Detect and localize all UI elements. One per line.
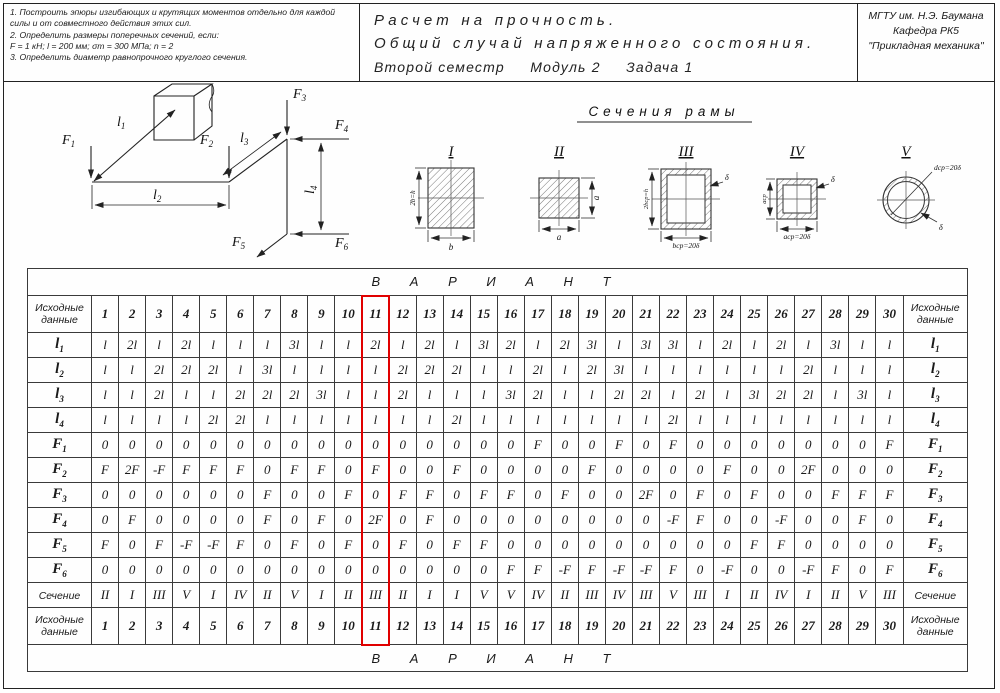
value-cell: 0 <box>308 433 335 458</box>
value-cell: 0 <box>389 558 416 583</box>
force-f5-arrow <box>257 234 287 257</box>
variant-number: 5 <box>200 608 227 645</box>
value-cell: 2l <box>659 408 686 433</box>
value-cell: 0 <box>443 558 470 583</box>
value-cell: 0 <box>687 433 714 458</box>
value-cell: 0 <box>200 483 227 508</box>
value-cell: l <box>659 383 686 408</box>
value-cell: F <box>768 533 795 558</box>
value-cell: l <box>822 358 849 383</box>
value-cell: F <box>335 483 362 508</box>
value-cell: l <box>308 408 335 433</box>
value-cell: l <box>335 358 362 383</box>
value-cell: F <box>876 558 903 583</box>
value-cell: 2l <box>714 333 741 358</box>
value-cell: 3l <box>497 383 524 408</box>
value-cell: -F <box>768 508 795 533</box>
value-cell: 0 <box>119 483 146 508</box>
value-cell: F <box>849 508 876 533</box>
variant-number: 4 <box>173 296 200 333</box>
value-cell: 2l <box>416 358 443 383</box>
value-cell: IV <box>227 583 254 608</box>
value-cell: II <box>335 583 362 608</box>
beam-l1 <box>94 110 175 181</box>
variant-number: 22 <box>659 296 686 333</box>
value-cell: l <box>92 358 119 383</box>
value-cell: II <box>741 583 768 608</box>
value-cell: 2l <box>200 408 227 433</box>
value-cell: F <box>92 458 119 483</box>
value-cell: l <box>119 358 146 383</box>
value-cell: II <box>551 583 578 608</box>
variant-number: 3 <box>146 608 173 645</box>
value-cell: F <box>119 508 146 533</box>
value-cell: F <box>443 533 470 558</box>
sections-title: Сечения рамы <box>588 104 739 119</box>
value-cell: 0 <box>822 458 849 483</box>
variant-number: 20 <box>605 608 632 645</box>
variant-number: 7 <box>254 296 281 333</box>
section-V-dim-thickness: δ <box>939 223 943 232</box>
value-cell: F <box>659 558 686 583</box>
value-cell: l <box>119 408 146 433</box>
value-cell: II <box>389 583 416 608</box>
value-cell: 0 <box>146 558 173 583</box>
row-label-cell: l2 <box>28 358 92 383</box>
value-cell: 0 <box>200 433 227 458</box>
value-cell: II <box>822 583 849 608</box>
value-cell: F <box>578 558 605 583</box>
value-cell: F <box>849 483 876 508</box>
value-cell: 0 <box>92 433 119 458</box>
l3-dimension <box>223 132 281 175</box>
variant-number: 29 <box>849 296 876 333</box>
value-cell: 0 <box>335 558 362 583</box>
value-cell: F <box>362 458 389 483</box>
value-cell: 0 <box>741 558 768 583</box>
value-cell: 0 <box>92 508 119 533</box>
row-label-text: F <box>52 486 62 502</box>
value-cell: 0 <box>416 533 443 558</box>
row-label-cell: l4 <box>903 408 967 433</box>
value-cell: IV <box>524 583 551 608</box>
value-cell: 0 <box>308 533 335 558</box>
value-cell: 0 <box>362 533 389 558</box>
row-label-cell: l3 <box>28 383 92 408</box>
corner-label: Исходные данные <box>28 296 92 333</box>
title-line-3: Второй семестр Модуль 2 Задача 1 <box>374 59 857 75</box>
value-cell: l <box>876 333 903 358</box>
section-IV-numeral: IV <box>789 144 806 160</box>
variant-number: 2 <box>119 608 146 645</box>
variant-number: 4 <box>173 608 200 645</box>
value-cell: 2l <box>578 358 605 383</box>
variant-number: 2 <box>119 296 146 333</box>
variant-number: 17 <box>524 296 551 333</box>
value-cell: F <box>741 533 768 558</box>
variant-number: 25 <box>741 296 768 333</box>
value-cell: l <box>876 358 903 383</box>
table-row: l1l2ll2llll3lll2ll2ll3l2ll2l3ll3l3ll2ll2… <box>28 333 968 358</box>
value-cell: 0 <box>497 433 524 458</box>
value-cell: -F <box>795 558 822 583</box>
section-I-dim-bottom: b <box>449 242 454 252</box>
variant-number: 8 <box>281 608 308 645</box>
value-cell: F <box>497 558 524 583</box>
value-cell: IV <box>605 583 632 608</box>
value-cell: 2l <box>389 383 416 408</box>
org-line-3: "Прикладная механика" <box>858 39 994 54</box>
value-cell: 0 <box>632 508 659 533</box>
value-cell: I <box>119 583 146 608</box>
row-label-cell: l3 <box>903 383 967 408</box>
variant-number: 19 <box>578 608 605 645</box>
row-label-cell: Сечение <box>28 583 92 608</box>
value-cell: l <box>200 333 227 358</box>
section-V-numeral: V <box>901 144 912 160</box>
value-cell: V <box>173 583 200 608</box>
value-cell: 0 <box>308 558 335 583</box>
value-cell: F <box>524 433 551 458</box>
value-cell: -F <box>551 558 578 583</box>
section-V-dim-diameter: dср=20δ <box>934 163 961 172</box>
row-label-cell: l1 <box>28 333 92 358</box>
value-cell: l <box>876 383 903 408</box>
value-cell: F <box>578 458 605 483</box>
value-cell: 0 <box>254 533 281 558</box>
value-cell: 0 <box>443 508 470 533</box>
variant-number: 26 <box>768 296 795 333</box>
corner-label: Исходные данные <box>903 296 967 333</box>
value-cell: 0 <box>578 508 605 533</box>
row-label-cell: F4 <box>28 508 92 533</box>
value-cell: V <box>849 583 876 608</box>
value-cell: l <box>200 383 227 408</box>
value-cell: 0 <box>497 458 524 483</box>
value-cell: 0 <box>92 483 119 508</box>
value-cell: 0 <box>741 458 768 483</box>
value-cell: l <box>876 408 903 433</box>
value-cell: 0 <box>714 508 741 533</box>
row-label-cell: l2 <box>903 358 967 383</box>
value-cell: 0 <box>659 458 686 483</box>
value-cell: l <box>551 383 578 408</box>
variant-number: 18 <box>551 608 578 645</box>
value-cell: 0 <box>605 458 632 483</box>
value-cell: 2l <box>497 333 524 358</box>
value-cell: l <box>335 408 362 433</box>
value-cell: l <box>416 383 443 408</box>
row-label-text: F <box>52 561 62 577</box>
section-IV: IV aср aср=20δ δ <box>761 144 835 241</box>
value-cell: F <box>443 458 470 483</box>
value-cell: 0 <box>632 458 659 483</box>
value-cell: 0 <box>795 508 822 533</box>
section-III-numeral: III <box>678 144 695 160</box>
value-cell: 0 <box>687 458 714 483</box>
corner-label: Исходные данные <box>903 608 967 645</box>
value-cell: V <box>281 583 308 608</box>
variant-number: 16 <box>497 296 524 333</box>
value-cell: 3l <box>632 333 659 358</box>
value-cell: l <box>822 383 849 408</box>
value-cell: l <box>470 383 497 408</box>
value-cell: V <box>470 583 497 608</box>
value-cell: l <box>335 383 362 408</box>
value-cell: 0 <box>822 533 849 558</box>
value-cell: 0 <box>714 433 741 458</box>
value-cell: l <box>768 358 795 383</box>
length-label-l4: l4 <box>303 185 319 194</box>
organization-block: МГТУ им. Н.Э. Баумана Кафедра РК5 "Прикл… <box>857 4 994 81</box>
value-cell: 0 <box>849 458 876 483</box>
value-cell: F <box>714 458 741 483</box>
variant-number: 3 <box>146 296 173 333</box>
value-cell: 0 <box>768 483 795 508</box>
value-cell: 0 <box>335 458 362 483</box>
corner-label: Исходные данные <box>28 608 92 645</box>
value-cell: 0 <box>714 483 741 508</box>
value-cell: l <box>173 383 200 408</box>
value-cell: 2l <box>281 383 308 408</box>
value-cell: -F <box>200 533 227 558</box>
value-cell: 2l <box>362 333 389 358</box>
org-line-2: Кафедра РК5 <box>858 24 994 39</box>
value-cell: 3l <box>281 333 308 358</box>
value-cell: l <box>849 408 876 433</box>
value-cell: l <box>173 408 200 433</box>
row-label-cell: F6 <box>28 558 92 583</box>
value-cell: 0 <box>227 433 254 458</box>
variant-banner: В А Р И А Н Т <box>28 645 968 672</box>
value-cell: 2l <box>146 358 173 383</box>
variant-number: 5 <box>200 296 227 333</box>
variant-number: 6 <box>227 296 254 333</box>
value-cell: 0 <box>416 558 443 583</box>
value-cell: l <box>443 333 470 358</box>
variant-number: 13 <box>416 296 443 333</box>
value-cell: 3l <box>741 383 768 408</box>
value-cell: F <box>389 483 416 508</box>
row-label-cell: F1 <box>28 433 92 458</box>
value-cell: F <box>470 483 497 508</box>
value-cell: 0 <box>876 533 903 558</box>
value-cell: l <box>768 408 795 433</box>
value-cell: 0 <box>92 558 119 583</box>
value-cell: F <box>146 533 173 558</box>
value-cell: 0 <box>227 483 254 508</box>
value-cell: III <box>632 583 659 608</box>
value-cell: 0 <box>119 433 146 458</box>
variant-number: 27 <box>795 296 822 333</box>
value-cell: l <box>524 408 551 433</box>
task-sheet: 1. Построить эпюры изгибающих и крутящих… <box>3 3 995 689</box>
value-cell: 0 <box>822 433 849 458</box>
row-label-text: F <box>928 486 938 502</box>
value-cell: l <box>362 358 389 383</box>
variant-number: 21 <box>632 608 659 645</box>
value-cell: 0 <box>362 433 389 458</box>
value-cell: l <box>741 408 768 433</box>
header-band: 1. Построить эпюры изгибающих и крутящих… <box>4 4 994 82</box>
value-cell: F <box>416 508 443 533</box>
task-item-2: 2. Определить размеры поперечных сечений… <box>10 30 353 41</box>
value-cell: 2l <box>443 408 470 433</box>
value-cell: 0 <box>254 433 281 458</box>
table-row: F10000000000000000F00F0F0000000FF1 <box>28 433 968 458</box>
value-cell: 2l <box>551 333 578 358</box>
value-cell: 0 <box>119 533 146 558</box>
force-label-f1: F1 <box>61 133 75 149</box>
section-II: II a a <box>530 144 601 242</box>
row-label-cell: F2 <box>28 458 92 483</box>
section-I-numeral: I <box>448 144 455 160</box>
value-cell: 0 <box>578 533 605 558</box>
value-cell: l <box>146 408 173 433</box>
value-cell: l <box>92 408 119 433</box>
value-cell: 2l <box>227 408 254 433</box>
variant-number: 14 <box>443 608 470 645</box>
value-cell: 0 <box>173 558 200 583</box>
value-cell: l <box>659 358 686 383</box>
variant-number: 25 <box>741 608 768 645</box>
value-cell: F <box>822 483 849 508</box>
value-cell: F <box>173 458 200 483</box>
variant-number: 12 <box>389 608 416 645</box>
value-cell: 0 <box>687 533 714 558</box>
value-cell: 0 <box>173 508 200 533</box>
value-cell: 0 <box>714 533 741 558</box>
table-row: l3ll2lll2l2l2l3lll2llll3l2lll2l2ll2ll3l2… <box>28 383 968 408</box>
value-cell: 0 <box>470 433 497 458</box>
variant-number: 15 <box>470 296 497 333</box>
value-cell: 2F <box>362 508 389 533</box>
value-cell: 0 <box>173 483 200 508</box>
value-cell: 0 <box>741 433 768 458</box>
value-cell: III <box>687 583 714 608</box>
title-line-2: Общий случай напряженного состояния. <box>374 33 857 56</box>
variant-number: 13 <box>416 608 443 645</box>
value-cell: F <box>92 533 119 558</box>
value-cell: 2l <box>768 333 795 358</box>
value-cell: 0 <box>200 558 227 583</box>
value-cell: l <box>119 383 146 408</box>
value-cell: 0 <box>578 483 605 508</box>
variant-number: 20 <box>605 296 632 333</box>
value-cell: 0 <box>470 458 497 483</box>
value-cell: F <box>876 433 903 458</box>
row-label-text: F <box>928 461 938 477</box>
row-label-cell: F2 <box>903 458 967 483</box>
table-row: F40F0000F0F02F0F00000000-FF00-F00F0F4 <box>28 508 968 533</box>
value-cell: F <box>227 533 254 558</box>
row-label-text: F <box>928 536 938 552</box>
value-cell: 0 <box>389 508 416 533</box>
value-cell: l <box>308 333 335 358</box>
row-label-text: F <box>52 511 62 527</box>
value-cell: l <box>470 408 497 433</box>
variant-number: 12 <box>389 296 416 333</box>
variant-number: 23 <box>687 296 714 333</box>
value-cell: II <box>92 583 119 608</box>
value-cell: l <box>443 383 470 408</box>
value-cell: 2F <box>795 458 822 483</box>
row-label-text: F <box>52 536 62 552</box>
value-cell: l <box>524 333 551 358</box>
variant-numbers-row: Исходные данные1234567891011121314151617… <box>28 608 968 645</box>
banner-row: В А Р И А Н Т <box>28 645 968 672</box>
value-cell: l <box>362 408 389 433</box>
value-cell: 0 <box>605 508 632 533</box>
value-cell: 3l <box>254 358 281 383</box>
value-cell: 0 <box>281 558 308 583</box>
value-cell: IV <box>768 583 795 608</box>
row-label-cell: Сечение <box>903 583 967 608</box>
drawings-svg: F1 F2 F3 F4 F5 F6 l1 l2 l3 l4 Сечения ра… <box>4 82 993 268</box>
value-cell: 0 <box>524 483 551 508</box>
value-cell: II <box>254 583 281 608</box>
value-cell: 0 <box>443 483 470 508</box>
value-cell: 3l <box>659 333 686 358</box>
row-label-cell: F5 <box>28 533 92 558</box>
value-cell: 2l <box>254 383 281 408</box>
value-cell: 0 <box>227 558 254 583</box>
variant-number: 30 <box>876 296 903 333</box>
value-cell: III <box>146 583 173 608</box>
force-label-f2: F2 <box>199 133 214 149</box>
variant-number: 28 <box>822 608 849 645</box>
value-cell: F <box>254 508 281 533</box>
variant-number: 11 <box>362 296 389 333</box>
variant-number: 19 <box>578 296 605 333</box>
value-cell: F <box>605 433 632 458</box>
variant-number: 26 <box>768 608 795 645</box>
variant-number: 18 <box>551 296 578 333</box>
value-cell: 3l <box>470 333 497 358</box>
value-cell: 2l <box>146 383 173 408</box>
value-cell: 0 <box>768 458 795 483</box>
value-cell: 0 <box>524 508 551 533</box>
value-cell: 2l <box>200 358 227 383</box>
value-cell: l <box>389 333 416 358</box>
row-label-cell: F1 <box>903 433 967 458</box>
value-cell: l <box>389 408 416 433</box>
value-cell: F <box>308 508 335 533</box>
section-IV-dim-bottom: aср=20δ <box>784 232 811 241</box>
value-cell: l <box>335 333 362 358</box>
value-cell: 0 <box>578 433 605 458</box>
value-cell: l <box>308 358 335 383</box>
value-cell: F <box>497 483 524 508</box>
value-cell: 0 <box>254 558 281 583</box>
value-cell: F <box>416 483 443 508</box>
value-cell: F <box>876 483 903 508</box>
value-cell: l <box>605 333 632 358</box>
value-cell: 2l <box>443 358 470 383</box>
force-label-f4: F4 <box>334 118 349 134</box>
variant-banner: В А Р И А Н Т <box>28 269 968 296</box>
value-cell: l <box>254 408 281 433</box>
variant-number: 24 <box>714 296 741 333</box>
value-cell: l <box>687 408 714 433</box>
value-cell: 0 <box>281 508 308 533</box>
value-cell: F <box>281 458 308 483</box>
variant-number: 23 <box>687 608 714 645</box>
variant-numbers-row: Исходные данные1234567891011121314151617… <box>28 296 968 333</box>
value-cell: F <box>281 533 308 558</box>
value-cell: F <box>822 558 849 583</box>
value-cell: F <box>524 558 551 583</box>
